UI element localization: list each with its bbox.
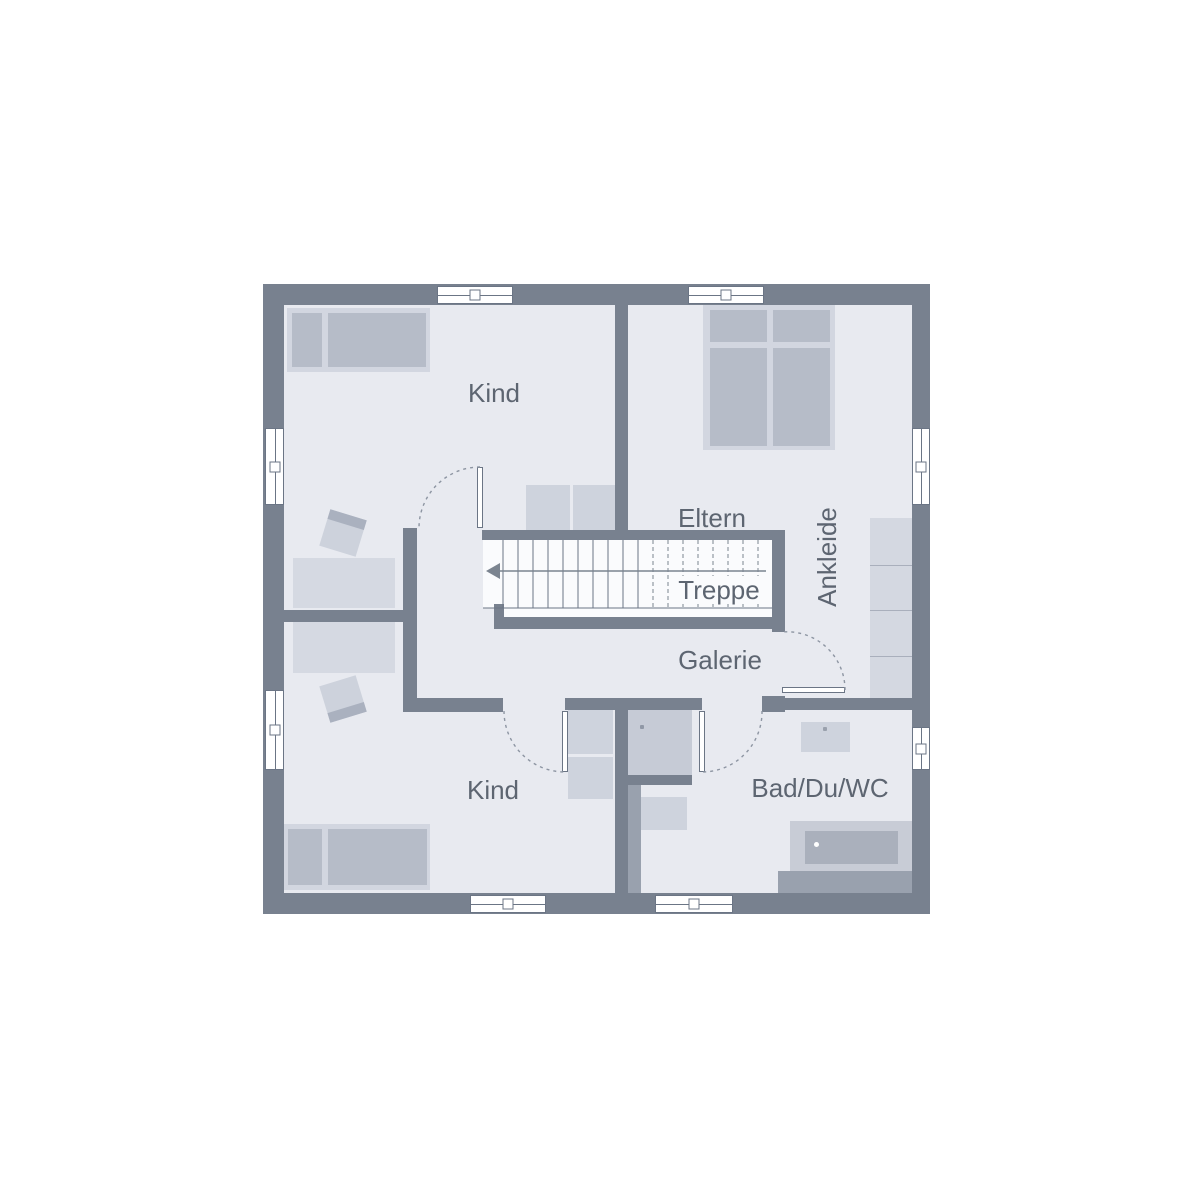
- wall-exterior-top: [263, 284, 930, 305]
- bed-pillow: [292, 313, 322, 367]
- bathtub-inner: [805, 831, 898, 864]
- washbasin: [801, 722, 850, 752]
- room-label-kind-lower: Kind: [467, 777, 519, 803]
- dresser-kind-upper: [526, 485, 617, 530]
- bed-mattress: [328, 829, 427, 885]
- wall-exterior-bottom: [263, 893, 930, 914]
- bed-kind-upper: [287, 308, 430, 372]
- bathtub-platform: [778, 871, 912, 893]
- wall-hall-left: [403, 528, 417, 712]
- wall-exterior-right: [912, 284, 930, 914]
- desk-kind-upper: [293, 558, 395, 608]
- room-label-ankleide: Ankleide: [814, 507, 840, 607]
- room-label-treppe: Treppe: [674, 576, 763, 604]
- window-top-right: [688, 286, 764, 304]
- room-label-kind-upper: Kind: [468, 380, 520, 406]
- wall-bad-left: [615, 698, 628, 893]
- window-top-left: [437, 286, 513, 304]
- door-leaf-kind-upper: [477, 467, 483, 528]
- wc: [641, 797, 687, 830]
- bed-kind-lower: [284, 824, 430, 890]
- window-left-lower: [265, 690, 284, 770]
- window-right-lower: [912, 727, 930, 770]
- bed-pillow-left: [710, 310, 767, 342]
- wall-kind-divider: [284, 610, 403, 622]
- room-label-galerie: Galerie: [678, 647, 762, 673]
- stair-landing: [503, 608, 772, 617]
- floor-plan: Kind Eltern Ankleide Treppe Galerie Kind…: [0, 0, 1200, 1200]
- bed-mattress-right: [773, 348, 830, 446]
- desk-kind-lower: [293, 622, 395, 673]
- installation-strip: [628, 785, 641, 893]
- wardrobe-kind-lower: [568, 710, 613, 799]
- window-right-upper: [912, 428, 930, 505]
- door-leaf-ankleide: [782, 687, 845, 693]
- double-bed-eltern: [703, 305, 835, 450]
- window-left-upper: [265, 428, 284, 505]
- room-label-bad: Bad/Du/WC: [751, 775, 888, 801]
- wall-stair-stub: [494, 604, 504, 617]
- bathtub: [790, 821, 912, 871]
- wardrobe-ankleide: [870, 518, 912, 698]
- bed-mattress: [328, 313, 426, 367]
- shower: [628, 710, 692, 775]
- window-bottom-right: [655, 895, 733, 913]
- door-leaf-kind-lower: [562, 711, 568, 772]
- wall-stair-bottom: [494, 617, 785, 629]
- wall-bad-top: [785, 698, 912, 710]
- bed-mattress-left: [710, 348, 767, 446]
- wall-hall-bottom-b: [565, 698, 702, 710]
- room-label-eltern: Eltern: [678, 505, 746, 531]
- wall-hall-bottom-c: [762, 696, 785, 712]
- wall-exterior-left: [263, 284, 284, 914]
- wall-hall-bottom-a: [403, 698, 503, 712]
- bed-pillow-right: [773, 310, 830, 342]
- window-bottom-left: [470, 895, 546, 913]
- wall-kind-eltern: [615, 305, 628, 540]
- door-leaf-bad: [699, 711, 705, 772]
- bed-pillow: [288, 829, 322, 885]
- wall-shower: [628, 775, 692, 785]
